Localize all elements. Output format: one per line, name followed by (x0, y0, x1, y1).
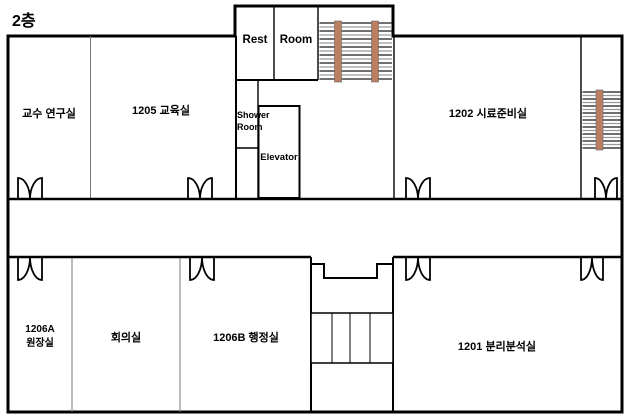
room-label-1206a-line1: 1206A (25, 324, 54, 335)
stairs-icon-right (583, 90, 621, 150)
room-label-1202: 1202 시료준비실 (449, 106, 527, 120)
floor-plan-page: 2층 (0, 0, 627, 420)
room-label-professor-office: 교수 연구실 (22, 106, 76, 120)
stairs-icon-middle (311, 313, 393, 363)
room-label-1205: 1205 교육실 (132, 103, 190, 117)
room-label-elevator: Elevator (260, 152, 298, 163)
room-label-shower-line1: Shower (237, 110, 270, 120)
stair-rail-icon (335, 21, 342, 82)
floor-plan: 2층 (0, 0, 627, 420)
room-label-1201: 1201 분리분석실 (458, 339, 536, 353)
stair-rail-icon (372, 21, 379, 82)
room-label-1206b: 1206B 행정실 (213, 330, 279, 344)
room-label-meeting-room: 회의실 (111, 330, 141, 344)
room-label-1206a-line2: 원장실 (26, 336, 54, 349)
page-title: 2층 (12, 12, 36, 30)
room-label-shower-line2: Room (237, 122, 263, 132)
room-label-rest-room: Room (280, 34, 313, 46)
room-label-rest: Rest (243, 34, 268, 46)
stair-rail-icon (596, 90, 603, 150)
